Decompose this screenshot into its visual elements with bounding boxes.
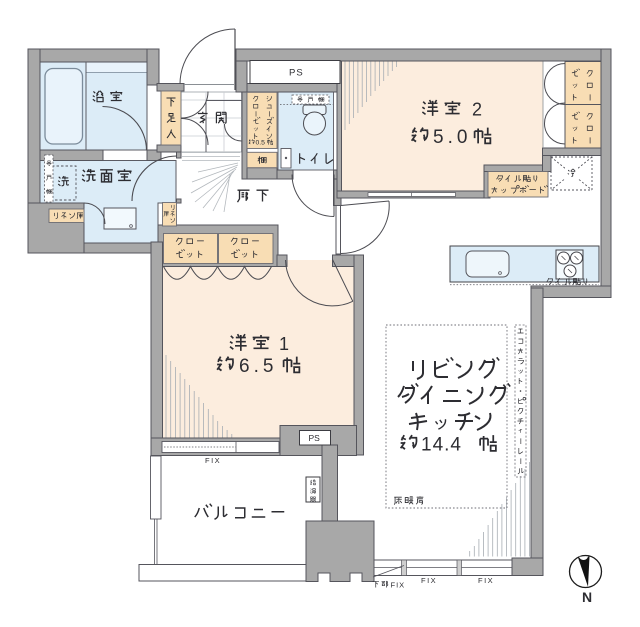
svg-text:FIX: FIX: [391, 581, 406, 590]
svg-text:PS: PS: [309, 433, 321, 443]
svg-text:6.5: 6.5: [239, 356, 277, 377]
svg-text:2: 2: [472, 100, 482, 120]
svg-text:0.5: 0.5: [256, 140, 266, 147]
svg-text:FIX: FIX: [421, 576, 437, 585]
svg-text:N: N: [582, 589, 592, 605]
svg-text:1: 1: [279, 334, 289, 354]
svg-text:5.0: 5.0: [433, 127, 471, 148]
svg-text:14.4: 14.4: [421, 435, 462, 456]
svg-text:FIX: FIX: [205, 456, 221, 465]
svg-text:PS: PS: [289, 68, 304, 79]
svg-text:FIX: FIX: [478, 576, 494, 585]
